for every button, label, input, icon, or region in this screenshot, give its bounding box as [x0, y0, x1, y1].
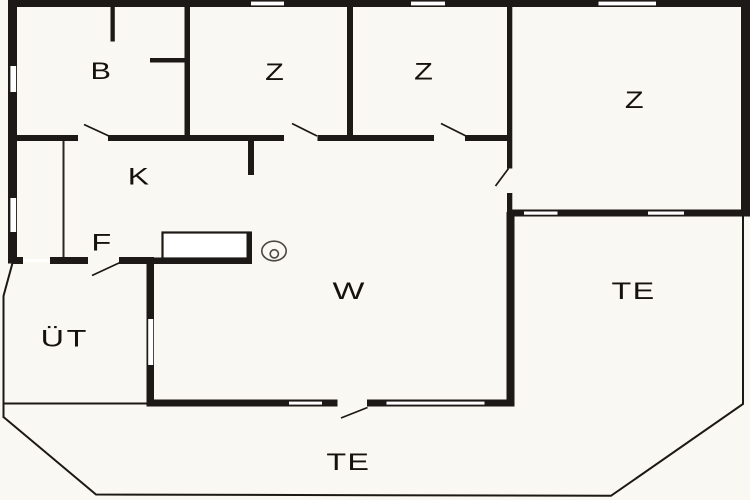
svg-text:W: W [332, 277, 364, 304]
svg-text:TE: TE [612, 278, 656, 305]
svg-text:ÜT: ÜT [41, 325, 89, 352]
svg-text:F: F [91, 229, 111, 256]
svg-text:Z: Z [625, 86, 644, 113]
svg-text:B: B [90, 57, 110, 84]
svg-text:Z: Z [265, 58, 284, 85]
svg-text:K: K [128, 163, 149, 191]
svg-text:Z: Z [414, 57, 433, 84]
svg-text:TE: TE [326, 449, 370, 476]
